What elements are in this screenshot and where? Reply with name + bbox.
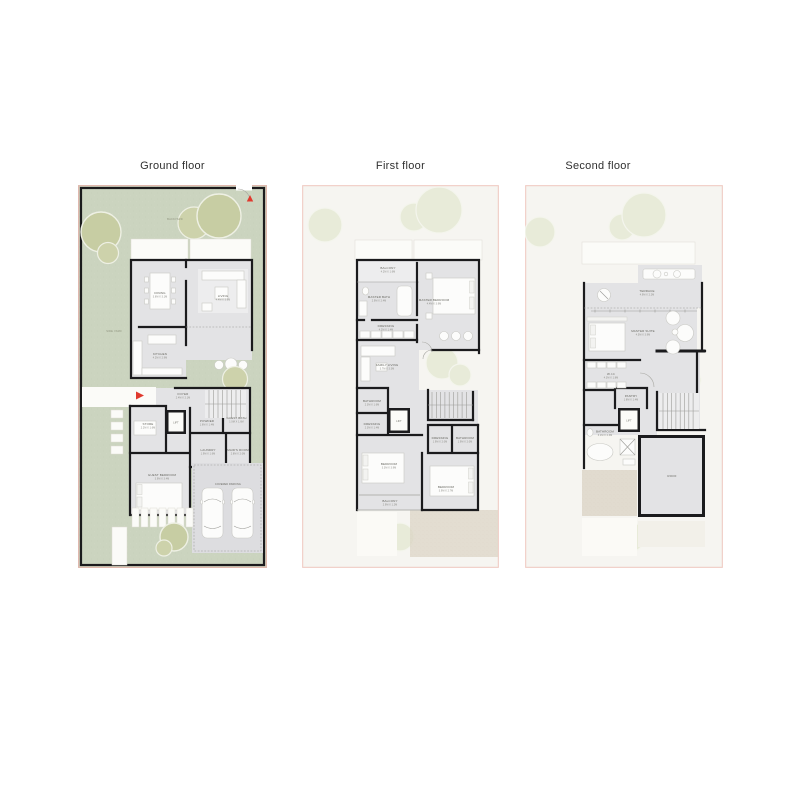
powder-label: POWDER [200,419,215,423]
parking-label: COVERED PARKING [215,483,241,486]
car-1 [201,488,225,538]
svg-text:3.9M X 3.4M: 3.9M X 3.4M [155,478,169,481]
svg-text:4.2M X 1.6M: 4.2M X 1.6M [381,271,395,274]
ghost-pad [357,512,397,556]
front-terrace-right [190,239,251,260]
guest-bath-label: GUEST BATH [226,416,246,420]
kitchen-label: KITCHEN [153,352,167,356]
svg-text:2.3M X 1.4M: 2.3M X 1.4M [365,427,379,430]
first-floor-plan: BALCONY 4.2M X 1.6M MASTER BATH 2.9M X 2… [302,185,499,568]
svg-text:1.9M X 1.6M: 1.9M X 1.6M [229,421,243,424]
svg-text:4.4M X 3.9M: 4.4M X 3.9M [216,299,230,302]
svg-text:1.9M X 2.0M: 1.9M X 2.0M [458,441,472,444]
terrace-label: TERRACE [639,289,654,293]
balcony2-label: BALCONY [382,499,397,503]
roof-pad-right [414,240,482,260]
guest-bed [136,483,182,510]
ghost-pad [582,518,637,556]
maids-room-label: MAID'S ROOM [227,448,249,452]
svg-text:4.2M X 2.9M: 4.2M X 2.9M [153,357,167,360]
living-sofa [198,269,248,313]
first-floor-svg: BALCONY 4.2M X 1.6M MASTER BATH 2.9M X 2… [302,185,499,568]
second-floor-plan: TERRACE 4.9M X 2.2M MASTER SUITE 4.5M X … [525,185,723,568]
svg-text:3.6M X 3.1M: 3.6M X 3.1M [153,296,167,299]
svg-text:4.9M X 2.2M: 4.9M X 2.2M [640,294,654,297]
ground-floor-plan: BACKYARD SIDE YARD [78,185,267,568]
family-living-label: FAMILY LIVING [376,363,399,367]
dressing3-label: DRESSING [432,436,449,440]
svg-text:1.8M X 1.4M: 1.8M X 1.4M [624,399,638,402]
svg-text:4.3M X 1.8M: 4.3M X 1.8M [604,377,618,380]
stairs [659,393,699,429]
bathroom-label: BATHROOM [596,430,614,434]
master-suite-label: MASTER SUITE [631,329,655,333]
yard-tree-small [156,540,172,556]
roof-pad [582,242,695,264]
bedroom1-label: BEDROOM [381,462,398,466]
lift-label: LIFT [626,420,632,423]
living-label: LIVING [218,294,229,298]
svg-text:4.4M X 3.9M: 4.4M X 3.9M [427,303,441,306]
svg-text:2.3M X 1.6M: 2.3M X 1.6M [365,404,379,407]
stool [440,332,449,341]
stairs [205,390,246,418]
svg-text:1.9M X 2.0M: 1.9M X 2.0M [433,441,447,444]
bedroom2-label: BEDROOM [438,485,455,489]
svg-text:3.7M X 3.3M: 3.7M X 3.3M [380,368,394,371]
store-label: STORE [143,422,154,426]
balcony-label: BALCONY [380,266,395,270]
first-floor-title: First floor [302,160,499,172]
dining-label: DINING [154,291,166,295]
svg-text:3.1M X 2.3M: 3.1M X 2.3M [598,434,612,437]
dressing-label: DRESSING [378,324,395,328]
laundry-label: LAUNDRY [200,448,215,452]
svg-text:3.9M X 2.7M: 3.9M X 2.7M [439,490,453,493]
svg-text:4.2M X 1.4M: 4.2M X 1.4M [379,329,393,332]
floorplans-canvas: Ground floor First floor Second floor [0,0,800,800]
dressing-wardrobe [360,331,414,338]
svg-text:2.8M X 2.0M: 2.8M X 2.0M [231,453,245,456]
svg-text:1.9M X 1.6M: 1.9M X 1.6M [201,453,215,456]
pantry-label: PANTRY [625,394,638,398]
backyard-label: BACKYARD [167,217,183,221]
covered-parking: COVERED PARKING [192,463,263,553]
master-bedroom-label: MASTER BEDROOM [419,298,450,302]
stool [452,332,461,341]
sideyard-label: SIDE YARD [106,329,122,333]
roof-pad-left [355,240,412,260]
master-bath-label: MASTER BATH [368,295,390,299]
lift-label: LIFT [173,422,179,425]
car-2 [231,488,255,538]
master-bed [426,273,475,319]
ghost-roof-terrace [410,510,498,557]
terrace-bar [643,269,695,279]
second-floor-title: Second floor [499,160,697,172]
svg-text:2.9M X 1.2M: 2.9M X 1.2M [383,504,397,507]
foyer-label: FOYER [178,392,190,396]
svg-text:3.3M X 3.9M: 3.3M X 3.9M [382,467,396,470]
stool [464,332,473,341]
ghost-pad2 [638,521,705,547]
front-terrace-left [131,239,188,260]
bathroom-label: BATHROOM [363,399,381,403]
guest-bedroom-label: GUEST BEDROOM [148,473,177,477]
ground-floor-title: Ground floor [78,160,267,172]
svg-text:2.2M X 1.6M: 2.2M X 1.6M [141,427,155,430]
dressing2-label: DRESSING [364,422,381,426]
roof-label: ROOF [667,474,676,478]
roof-terrace-paving [582,470,637,516]
lift-label: LIFT [396,420,402,423]
second-floor-svg: TERRACE 4.9M X 2.2M MASTER SUITE 4.5M X … [525,185,723,568]
bathroom2-label: BATHROOM [456,436,474,440]
ground-floor-svg: BACKYARD SIDE YARD [78,185,267,568]
svg-text:2.9M X 2.4M: 2.9M X 2.4M [372,300,386,303]
svg-text:2.4M X 2.1M: 2.4M X 2.1M [176,397,190,400]
svg-text:4.5M X 3.9M: 4.5M X 3.9M [636,334,650,337]
wic-label: W.I.C [607,372,616,376]
svg-text:1.6M X 1.4M: 1.6M X 1.4M [200,424,214,427]
